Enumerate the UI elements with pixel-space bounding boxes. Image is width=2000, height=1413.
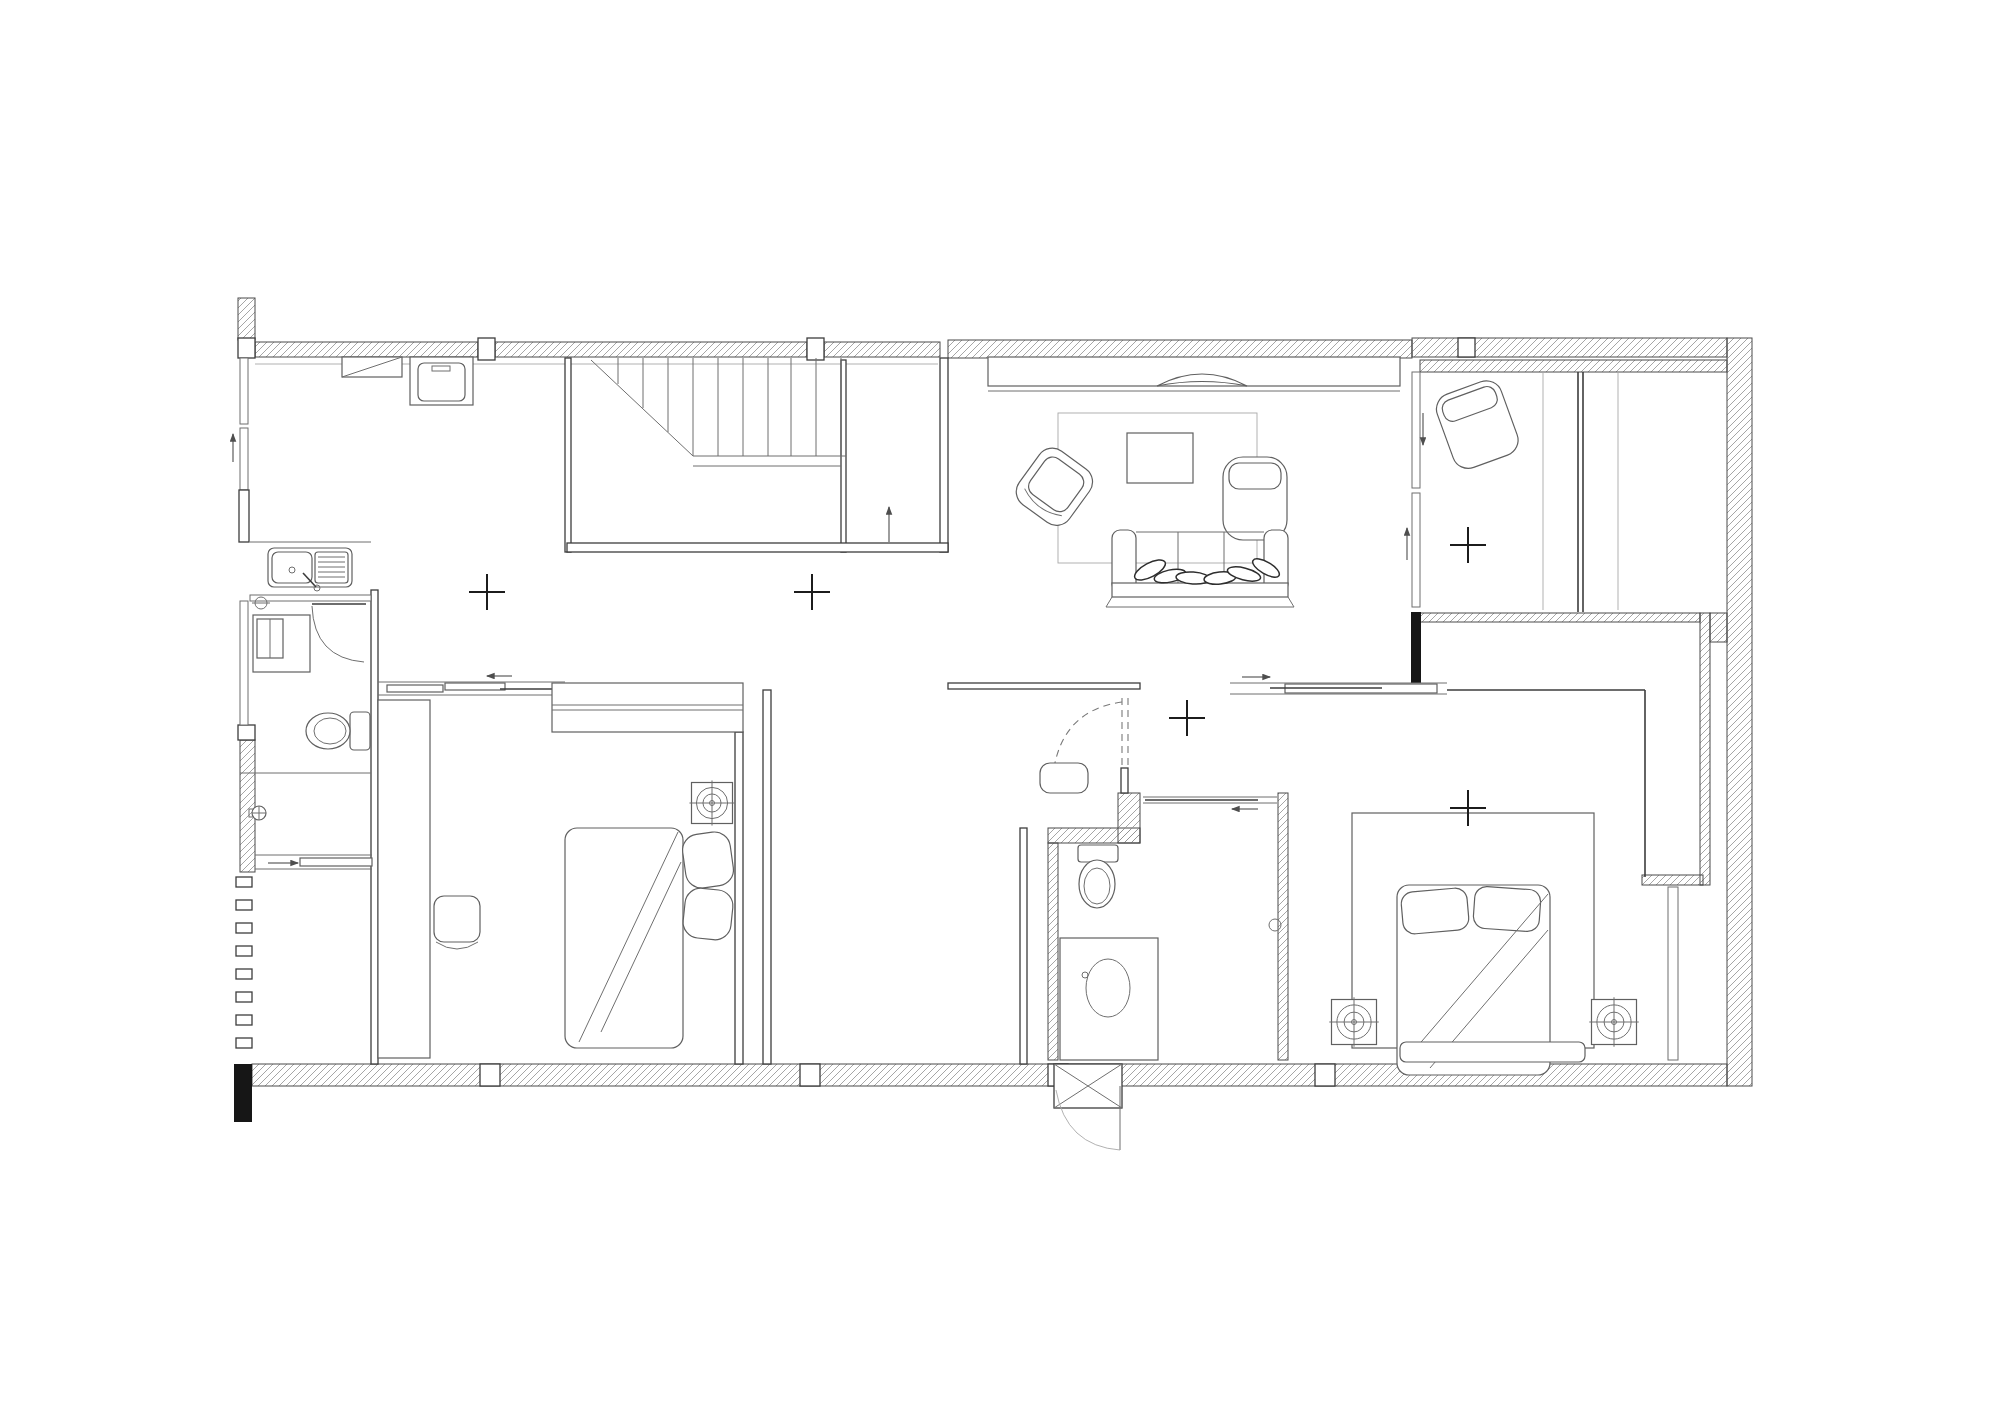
stub-wall-top-left: [238, 298, 255, 340]
hall-door-arc: [1054, 702, 1122, 768]
hall-door-stub: [1121, 768, 1128, 793]
column: [1458, 338, 1475, 357]
washer-inner: [418, 363, 465, 401]
br1-bed: [565, 828, 683, 1048]
toilet1-tank: [350, 712, 370, 750]
br1-pillow-a: [680, 830, 735, 890]
stair-break-line: [591, 360, 693, 456]
column: [478, 338, 495, 360]
column: [238, 338, 255, 358]
lounge-chair-headrest: [1229, 463, 1281, 489]
window-left-mid: [240, 428, 248, 490]
chaise-lounge: [1432, 376, 1523, 473]
textured-exterior-wall-tooth: [236, 992, 252, 1002]
survey-cross: [794, 574, 830, 610]
textured-exterior-wall-tooth: [236, 900, 252, 910]
black-wall-segment: [1411, 612, 1421, 683]
br2-pillow-b: [1473, 886, 1542, 933]
left-wall-hatch: [240, 740, 255, 872]
mid-right-wall: [1413, 613, 1700, 622]
right-wall-stub: [1642, 875, 1703, 885]
top-wall-segment-a: [255, 342, 478, 357]
left-solid-wall: [239, 490, 249, 542]
floor-plan-sheet: [0, 0, 2000, 1413]
right-exterior-wall: [1727, 338, 1752, 1086]
survey-cross: [469, 574, 505, 610]
black-end-post: [234, 1064, 252, 1122]
bath2-left-wall: [1020, 828, 1027, 1064]
column: [807, 338, 824, 360]
right-inner-wall: [1700, 613, 1710, 885]
closet-wall-hatch-v: [1048, 843, 1058, 1060]
column: [1315, 1064, 1335, 1086]
br1-door-panel-b: [445, 683, 505, 690]
survey-cross: [1169, 700, 1205, 736]
sofa-base: [1106, 597, 1294, 607]
balcony-wall: [1420, 360, 1727, 372]
br1-chair-back: [436, 942, 478, 949]
foyer-wall: [940, 358, 948, 552]
pouf: [1040, 763, 1088, 793]
page: [0, 0, 2000, 1413]
br2-foot-bench: [1400, 1042, 1585, 1062]
bath1-door-arc: [312, 606, 364, 662]
armchair: [1010, 442, 1099, 532]
kitchen-counter-edge: [250, 595, 371, 601]
textured-exterior-wall-tooth: [236, 877, 252, 887]
textured-exterior-wall-tooth: [236, 946, 252, 956]
window-right-room-b: [1412, 493, 1420, 607]
closet-wall-b: [763, 690, 771, 1064]
textured-exterior-wall-tooth: [236, 923, 252, 933]
top-wall-segment-d: [948, 340, 1412, 358]
window-right-room-a: [1412, 372, 1420, 488]
stairwell-wall-left: [565, 358, 571, 552]
window-left-upper: [240, 358, 248, 424]
window-bottom-right: [1668, 887, 1678, 1060]
top-wall-segment-c: [824, 342, 940, 357]
column: [480, 1064, 500, 1086]
br1-desk-chair: [434, 896, 480, 942]
textured-exterior-wall-tooth: [236, 969, 252, 979]
bath2-counter: [1060, 938, 1158, 1060]
survey-cross: [1450, 527, 1486, 563]
br2-fixture-right: [1589, 997, 1639, 1047]
bath2-right-wall-hatch: [1278, 793, 1288, 1060]
bath1-right-wall: [371, 590, 378, 1064]
left-wall-lower: [240, 601, 248, 725]
coffee-table: [1127, 433, 1193, 483]
hall-south-wall: [567, 543, 948, 552]
bath2-wall-hatch: [1118, 793, 1140, 843]
closet-island: [552, 683, 743, 732]
column: [238, 725, 255, 740]
column: [800, 1064, 820, 1086]
br1-pillow-b: [682, 887, 735, 942]
br1-wardrobe: [378, 700, 430, 1058]
br2-fixture-left: [1329, 997, 1379, 1047]
bath1-slide-panel: [300, 858, 372, 866]
closet-wall-a: [735, 732, 743, 1064]
textured-exterior-wall-tooth: [236, 1038, 252, 1048]
br2-pillow-a: [1400, 887, 1469, 935]
floor-plan-drawing: [0, 0, 2000, 1413]
textured-exterior-wall-tooth: [236, 1015, 252, 1025]
top-wall-segment-b: [495, 342, 807, 357]
br1-door-panel-a: [387, 685, 443, 692]
textured-exterior-wall: [236, 877, 252, 1048]
ceiling-fixture-closet: [689, 780, 734, 825]
sofa-back: [1112, 583, 1288, 597]
hall-wall-east: [948, 683, 1140, 689]
right-wall-junction: [1710, 613, 1727, 642]
plan-root: [233, 298, 1752, 1150]
